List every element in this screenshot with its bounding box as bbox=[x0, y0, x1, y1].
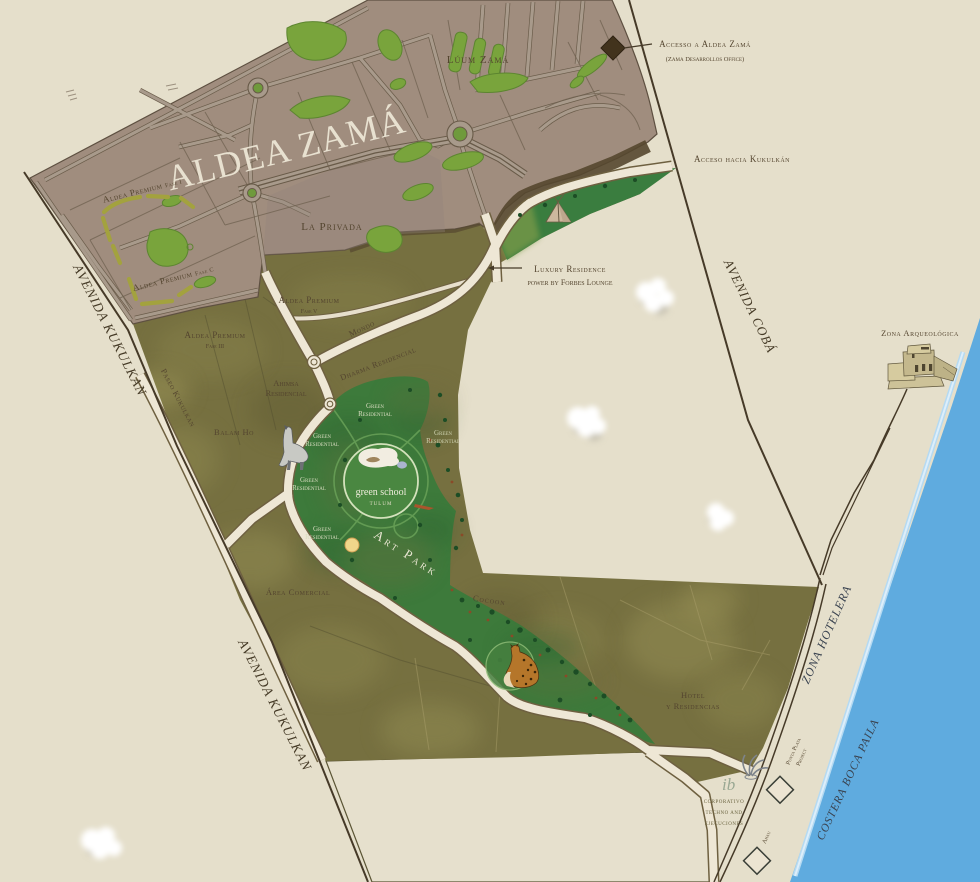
svg-text:TECHNO AND: TECHNO AND bbox=[705, 811, 742, 816]
svg-text:Green: Green bbox=[366, 402, 384, 410]
svg-text:Zona Arqueológica: Zona Arqueológica bbox=[881, 328, 959, 338]
svg-text:Aldea Premium: Aldea Premium bbox=[185, 330, 246, 340]
svg-text:EJECUCIONES: EJECUCIONES bbox=[705, 822, 744, 827]
svg-text:Residential: Residential bbox=[426, 437, 460, 445]
svg-text:power by Forbes Lounge: power by Forbes Lounge bbox=[527, 278, 612, 287]
svg-text:Luxury Residence: Luxury Residence bbox=[534, 264, 606, 274]
svg-text:Balam Ho: Balam Ho bbox=[214, 427, 254, 437]
svg-text:CORPORATIVO: CORPORATIVO bbox=[704, 800, 745, 805]
svg-text:Aldea Premium: Aldea Premium bbox=[279, 295, 340, 305]
svg-text:(Zama Desarrollos Office): (Zama Desarrollos Office) bbox=[666, 56, 744, 63]
svg-text:Hotel: Hotel bbox=[681, 690, 705, 700]
svg-text:ib: ib bbox=[722, 775, 735, 794]
svg-text:TULUM: TULUM bbox=[370, 502, 393, 507]
svg-text:Residential: Residential bbox=[358, 410, 392, 418]
svg-text:Residencial: Residencial bbox=[266, 388, 307, 398]
svg-text:Green: Green bbox=[434, 429, 452, 437]
svg-text:Ahimsa: Ahimsa bbox=[273, 378, 299, 388]
svg-text:Acceso hacia Kukulkán: Acceso hacia Kukulkán bbox=[694, 154, 790, 164]
svg-text:Residential: Residential bbox=[305, 533, 339, 541]
svg-text:Área Comercial: Área Comercial bbox=[266, 587, 330, 597]
svg-text:La Privada: La Privada bbox=[301, 221, 362, 233]
svg-text:Green: Green bbox=[300, 476, 318, 484]
svg-text:Fase V: Fase V bbox=[301, 309, 318, 315]
svg-text:Green: Green bbox=[313, 525, 331, 533]
svg-text:green school: green school bbox=[356, 487, 407, 498]
svg-text:Accesso a Aldea Zamá: Accesso a Aldea Zamá bbox=[659, 39, 751, 49]
svg-text:Lúum Zamá: Lúum Zamá bbox=[447, 54, 510, 66]
svg-text:Fase III: Fase III bbox=[206, 344, 224, 350]
svg-text:Residential: Residential bbox=[292, 484, 326, 492]
svg-text:Residential: Residential bbox=[305, 440, 339, 448]
svg-text:y Residencias: y Residencias bbox=[666, 701, 720, 711]
svg-text:Green: Green bbox=[313, 432, 331, 440]
